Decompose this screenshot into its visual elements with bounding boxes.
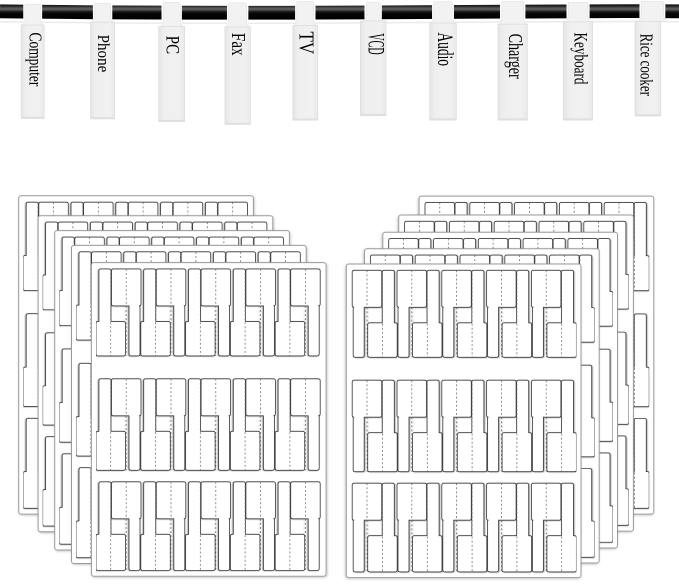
svg-text:Keyboard: Keyboard — [569, 33, 590, 85]
svg-text:VCD: VCD — [364, 33, 389, 54]
svg-text:Rice cooker: Rice cooker — [636, 34, 656, 96]
svg-text:Fax: Fax — [227, 33, 248, 56]
svg-text:Audio: Audio — [433, 33, 458, 67]
svg-text:Charger: Charger — [504, 34, 526, 79]
svg-text:PC: PC — [161, 36, 182, 54]
svg-text:Computer: Computer — [25, 33, 45, 87]
svg-text:TV: TV — [294, 32, 318, 55]
svg-text:Phone: Phone — [94, 35, 113, 73]
